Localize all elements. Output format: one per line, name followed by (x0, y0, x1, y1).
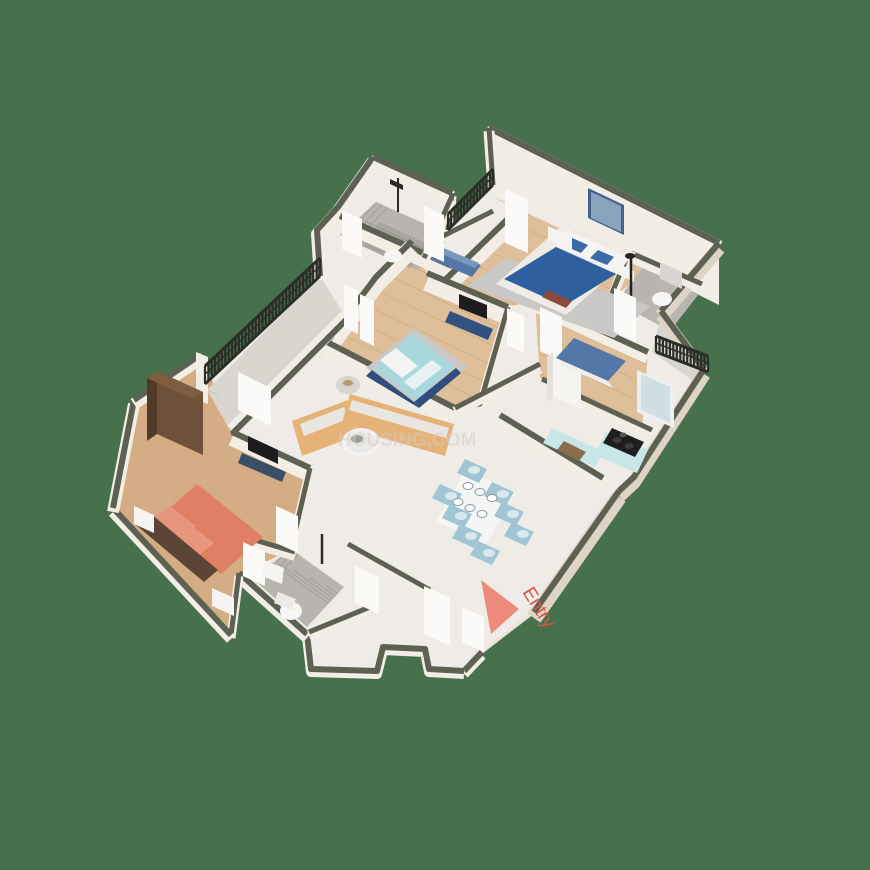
svg-text:HOUSING.COM: HOUSING.COM (338, 430, 476, 451)
